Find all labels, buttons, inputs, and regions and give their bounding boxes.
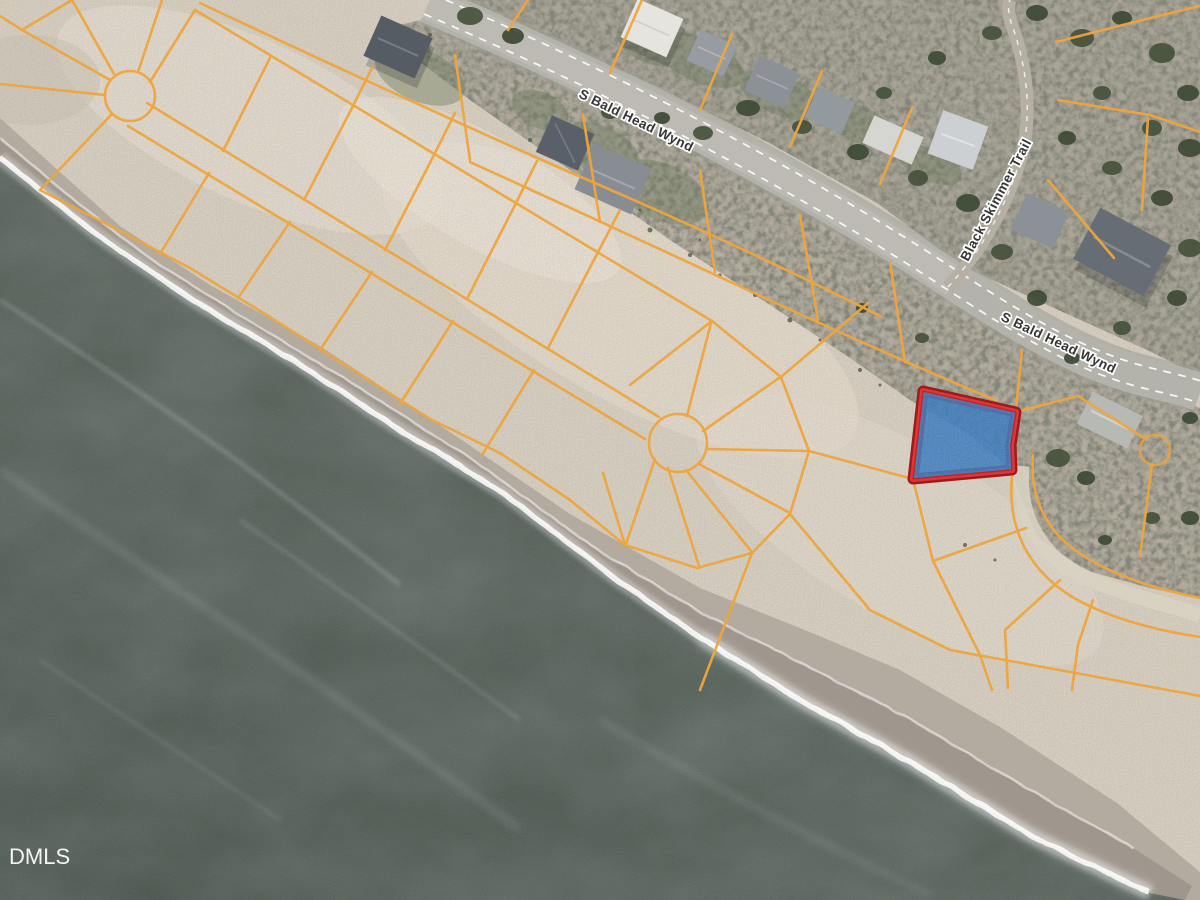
listing-photo-aerial-map: S Bald Head Wynd S Bald Head Wynd Black … bbox=[0, 0, 1200, 900]
aerial-map-canvas: S Bald Head Wynd S Bald Head Wynd Black … bbox=[0, 0, 1200, 900]
watermark-dmls: DMLS bbox=[9, 844, 70, 869]
